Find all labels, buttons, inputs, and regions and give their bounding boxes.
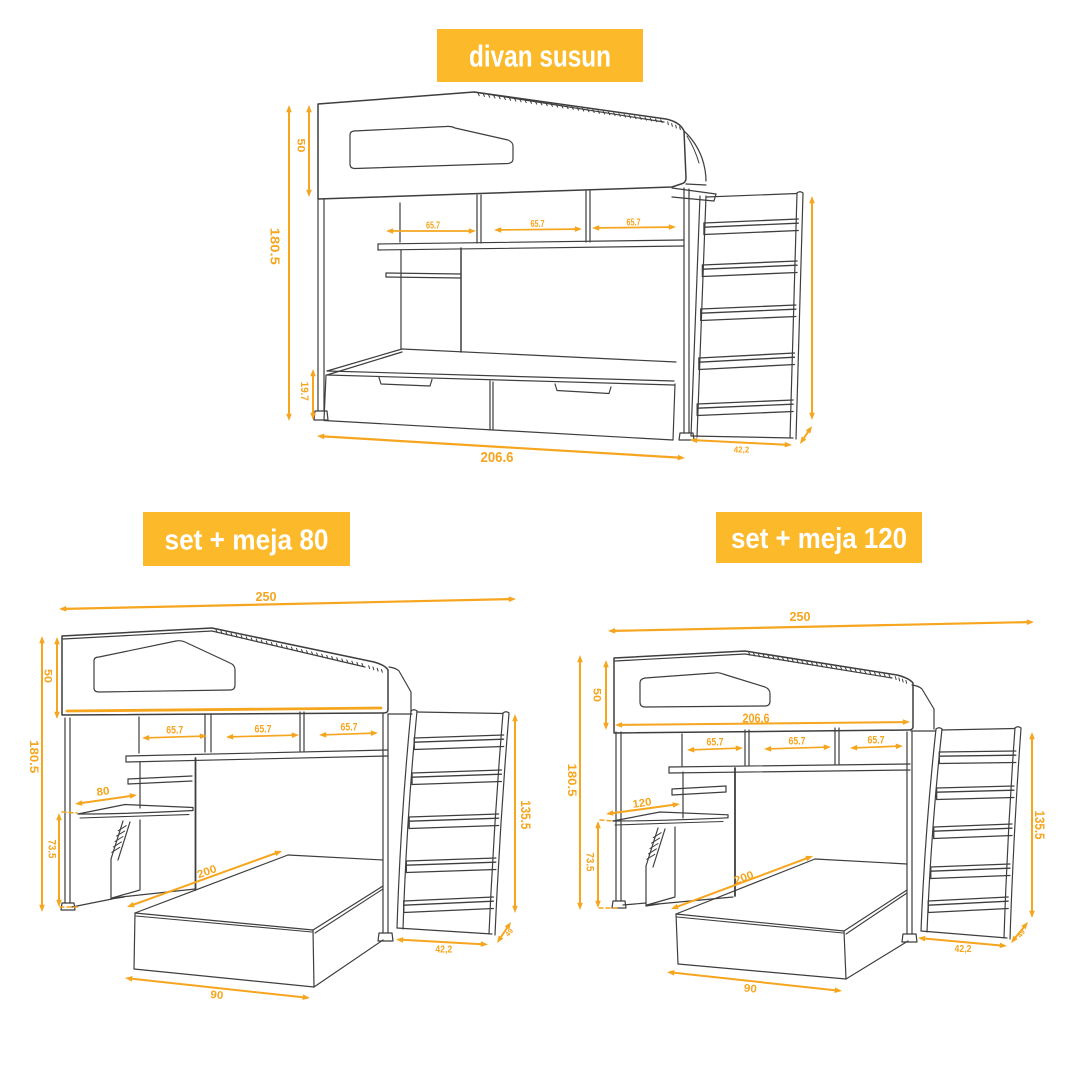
svg-text:80: 80 (96, 785, 111, 799)
svg-text:73.5: 73.5 (584, 853, 596, 872)
svg-text:50: 50 (42, 669, 54, 683)
svg-text:90: 90 (210, 989, 224, 1002)
svg-text:50: 50 (295, 138, 307, 152)
svg-text:180.5: 180.5 (27, 740, 39, 774)
svg-text:42,2: 42,2 (435, 944, 452, 955)
svg-text:divan susun: divan susun (469, 39, 611, 74)
svg-text:135.5: 135.5 (518, 800, 534, 829)
svg-text:135.5: 135.5 (1032, 811, 1048, 840)
svg-text:50: 50 (591, 688, 603, 702)
svg-text:65.7: 65.7 (166, 725, 183, 737)
svg-text:65.7: 65.7 (707, 737, 724, 749)
svg-text:65.7: 65.7 (255, 724, 272, 736)
svg-text:42,2: 42,2 (955, 944, 972, 955)
svg-text:65.7: 65.7 (627, 217, 641, 228)
svg-text:65.7: 65.7 (868, 735, 885, 747)
svg-text:65.7: 65.7 (531, 219, 545, 230)
svg-text:180.5: 180.5 (267, 228, 281, 265)
svg-text:206.6: 206.6 (481, 449, 514, 466)
svg-text:65.7: 65.7 (789, 736, 806, 748)
svg-text:set + meja 80: set + meja 80 (165, 524, 329, 556)
svg-text:set + meja 120: set + meja 120 (731, 523, 907, 555)
svg-text:90: 90 (743, 982, 757, 995)
svg-text:250: 250 (790, 609, 811, 624)
svg-text:250: 250 (256, 589, 277, 604)
svg-text:73.5: 73.5 (46, 840, 58, 859)
svg-text:180.5: 180.5 (565, 764, 577, 798)
svg-text:206.6: 206.6 (743, 712, 770, 726)
svg-text:19.7: 19.7 (298, 382, 310, 401)
svg-text:65.7: 65.7 (426, 221, 440, 232)
svg-text:42,2: 42,2 (734, 444, 750, 454)
svg-text:65.7: 65.7 (341, 722, 358, 734)
